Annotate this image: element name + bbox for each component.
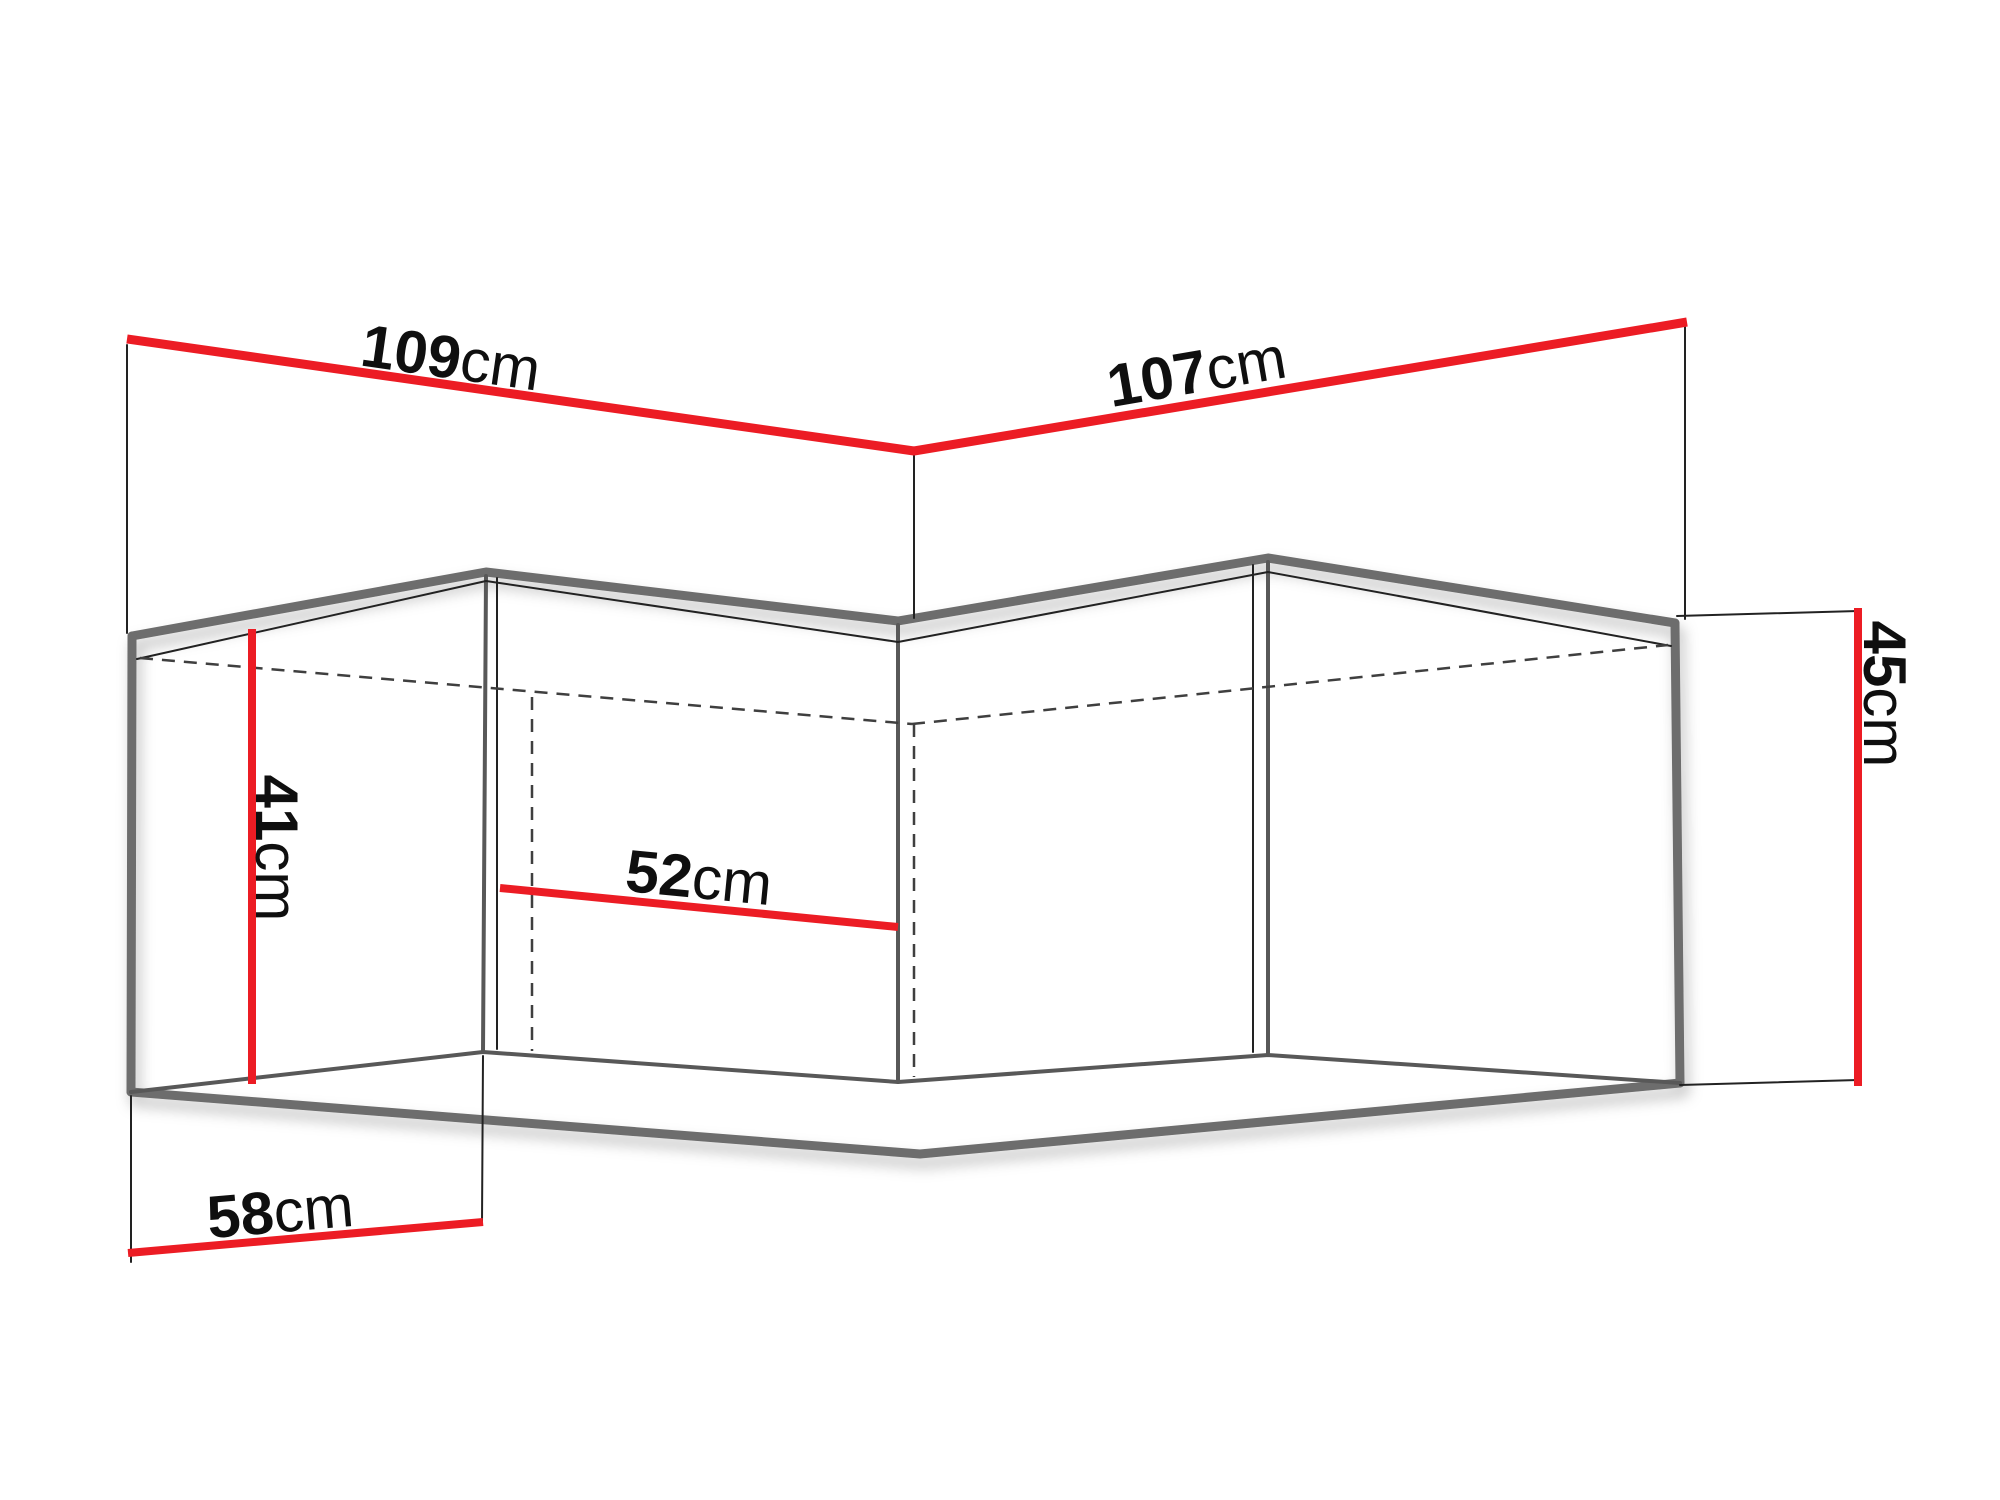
dimension-label-109: 109cm	[357, 312, 545, 404]
dimension-line-109-107	[127, 322, 1687, 451]
dimension-label-45: 45cm	[1851, 621, 1918, 768]
dimension-label-41: 41cm	[243, 775, 310, 922]
dimension-diagram: 109cm 107cm 41cm 52cm 58cm 45cm	[0, 0, 2000, 1500]
dimension-label-52: 52cm	[623, 837, 776, 918]
cabinet-drawing: 109cm 107cm 41cm 52cm 58cm 45cm	[0, 0, 2000, 1500]
dimension-label-107: 107cm	[1102, 324, 1291, 420]
dimension-label-58: 58cm	[204, 1172, 356, 1251]
